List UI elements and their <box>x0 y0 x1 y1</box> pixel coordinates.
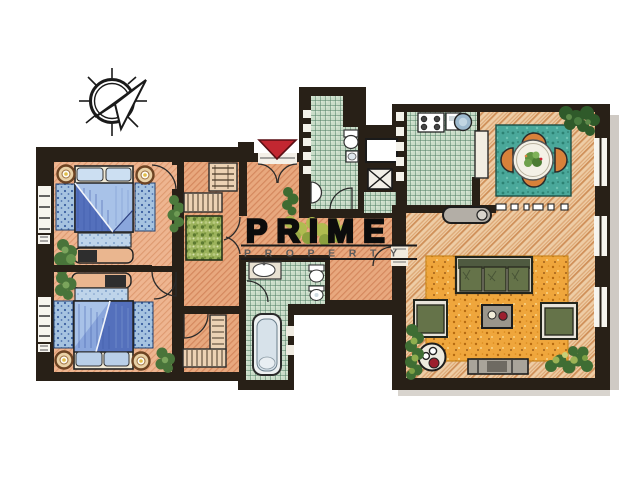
svg-text:PRIME: PRIME <box>246 213 394 249</box>
svg-text:PROPERTY: PROPERTY <box>244 248 411 260</box>
